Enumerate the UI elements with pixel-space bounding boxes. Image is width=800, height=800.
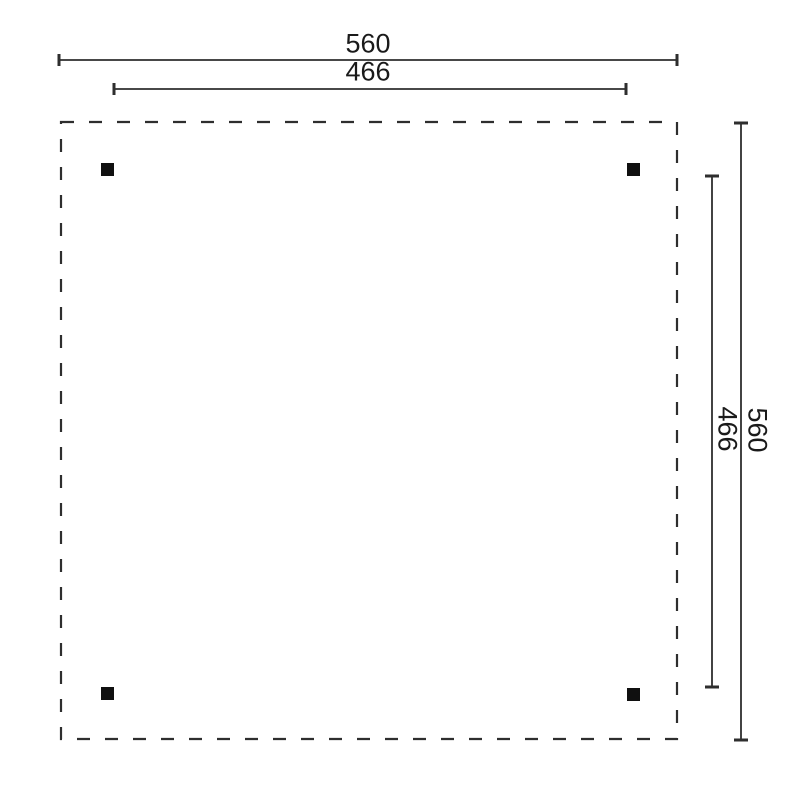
floorplan-canvas: 560 466 560 466 — [0, 0, 800, 800]
post-marker-bottom-right — [627, 688, 640, 701]
dim-label-right-outer: 560 — [744, 407, 771, 452]
post-marker-bottom-left — [101, 687, 114, 700]
plan-drawing — [0, 0, 800, 800]
plan-outline-dashed-rect — [61, 122, 677, 739]
post-marker-top-right — [627, 163, 640, 176]
dim-label-top-outer: 560 — [345, 31, 390, 58]
post-marker-top-left — [101, 163, 114, 176]
dim-label-right-inner: 466 — [714, 406, 741, 451]
dim-label-top-inner: 466 — [345, 59, 390, 86]
